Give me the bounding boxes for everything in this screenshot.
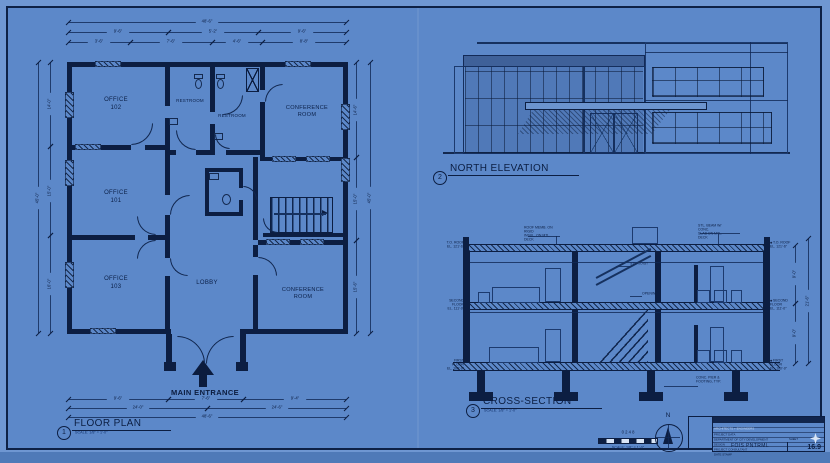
graphic-scale-bar [598,438,658,444]
leader [528,236,560,237]
section-pier [562,371,570,392]
dimension-label: 15'-0" [47,179,53,201]
marker-second-left: SECOND FLOOR EL. 111'-0" [443,299,464,311]
section-chair [714,290,727,303]
title-block: ARCHITECTS + ENGINEERS PROJECT DATA DEPA… [712,416,825,452]
wall-segment [205,168,243,172]
title-block-row-text: PROJECT DATA [713,434,735,436]
section-footing [469,392,493,401]
section-footing [554,392,578,401]
section-ground-slab [453,362,780,371]
wall-segment [240,334,246,362]
dimension-label: 24'-6" [265,405,287,411]
north-elevation-title: NORTH ELEVATION [448,163,579,176]
sheet-bottom-margin [0,452,830,463]
elevation-window-band [652,112,772,144]
wall-segment [165,155,170,195]
leader [718,234,719,245]
section-parapet [463,237,469,252]
title-block-row-text: DEPARTMENT OF CITY DEVELOPMENT [713,439,768,441]
wall-segment [263,233,348,237]
footer-divider [688,416,689,450]
dimension-label: 16'-0" [47,273,53,295]
section-roof-slab [463,244,770,252]
window-symbol [341,104,350,130]
sheet-label: SHEET [789,438,798,441]
dimension-label: 9'-6" [107,396,129,402]
window-symbol [65,262,74,288]
section-ext-wall [763,252,770,362]
stair-arrow-line [274,213,326,215]
dimension-label: 48'-6" [196,19,218,25]
scale-bar-ticks: 0 2 4 8 [606,430,651,436]
window-symbol [285,61,311,67]
section-pier [477,371,485,392]
title-block-row-text: DATE STAMP [713,454,732,456]
dimension-label: 15'-6" [353,275,359,297]
window-symbol [341,158,350,182]
room-label-lobby: LOBBY [185,280,229,288]
section-number-bubble: 3 [466,404,480,418]
window-symbol [306,156,330,162]
scale-bar-label: SCALE: 1/8" = 1'-0" [606,446,651,450]
wall-segment [236,362,248,371]
leader [700,233,740,234]
section-table [478,292,490,303]
elevation-entry-door [614,113,638,153]
wall-segment [165,62,170,106]
dimension-label: 48'-6" [196,414,218,420]
dimension-label: 7'-6" [160,39,182,45]
wall-segment [148,235,170,240]
leader [630,296,642,297]
section-chair [731,350,742,363]
sheet-number-cell: SHEET 16.9 [787,442,824,451]
room-label-conference-top: CONFERENCE ROOM [275,105,339,119]
wall-segment [210,62,215,112]
dimension-label: 9'-0" [792,263,798,285]
wall-segment [260,62,265,90]
section-ext-wall [463,252,470,362]
compass-axis [656,437,680,438]
window-symbol [65,160,74,186]
dimension-label: 15'-0" [353,187,359,209]
shaft-symbol [246,68,259,92]
section-chair [697,290,710,303]
floor-plan-title: FLOOR PLAN [72,418,171,431]
section-sofa [492,287,540,303]
sheet-fold-line [417,8,419,448]
elevation-canopy [525,102,707,110]
section-column [655,310,661,362]
dimension-label: 4'-6" [226,39,248,45]
project-name: FOIS PNTRML [713,442,787,451]
window-symbol [75,144,101,150]
room-label-office-102: OFFICE 102 [86,97,146,112]
footer-divider [688,416,823,417]
dimension-label: 8'-8" [293,39,315,45]
dimension-label: 9'-0" [792,322,798,344]
roof-assembly-note: ROOF MEMB. ON RIGID INSUL. ON MTL. DECK [524,226,555,242]
cross-section-title: CROSS-SECTION [481,396,602,409]
section-ceiling-line [470,312,763,313]
north-label: N [661,412,675,419]
wall-segment [253,275,258,333]
section-chair [731,290,742,303]
dimension-label: 9'-6" [291,29,313,35]
marker-roof-right: T.O. ROOF EL. 121'-6" [770,241,793,249]
sink [209,173,219,180]
blueprint-sheet: OFFICE 102 RESTROOM RESTROOM CONFERENCE … [0,0,830,463]
elevation-roof-band [463,55,645,67]
elevation-entry-door [590,113,614,153]
section-door [545,268,561,302]
window-symbol [90,328,116,334]
section-pier [647,371,655,392]
dimension-label: 14'-0" [47,93,53,115]
sheet-number: 16.9 [807,444,821,451]
section-chair [697,350,710,363]
section-footing [724,392,748,401]
dimension-label: 9'-4" [283,396,305,402]
dimension-label: 21'-6" [805,289,811,311]
wall-segment [67,235,135,240]
dimension-label: 5'-2" [202,29,224,35]
section-column [655,252,661,302]
wall-segment [260,102,265,157]
dimension-label: 14'-6" [353,98,359,120]
cross-section-scale: SCALE: 1/8" = 1'-0" [484,409,516,413]
room-label-office-101: OFFICE 101 [86,190,146,205]
section-ceiling-line [470,262,763,263]
room-label-office-103: OFFICE 103 [86,276,146,291]
dimension-label: 3'-6" [88,39,110,45]
section-door [545,329,561,362]
elevation-number-bubble: 2 [433,171,447,185]
wall-segment [253,245,258,257]
section-pier [732,371,740,392]
elevation-line [645,52,788,53]
window-symbol [272,156,296,162]
window-symbol [95,61,121,67]
section-parapet [764,237,770,252]
footing-note: CONC. PIER & FOOTING, TYP. [696,376,725,384]
dimension-label: 45'-0" [35,186,41,208]
section-column [572,252,578,302]
toilet-bowl [217,79,224,89]
marker-roof-left: T.O. ROOF EL. 121'-6" [443,241,464,249]
section-footing [639,392,663,401]
section-column [572,310,578,362]
wall-segment [165,240,170,258]
window-symbol [300,239,324,245]
plan-stairs [270,197,333,233]
wall-segment [343,62,348,334]
section-rooftop-unit [632,227,658,244]
elevation-floor-line [645,100,788,101]
wall-segment [165,276,170,333]
beam-note: STL. BEAM W/ CONC. SLAB ON MTL. DECK [698,224,730,240]
floor-plan-number-bubble: 1 [57,426,71,440]
window-symbol [266,239,290,245]
toilet-bowl [222,194,231,205]
dimension-label: 45'-0" [367,186,373,208]
wall-segment [166,334,172,362]
floor-plan-scale: SCALE: 1/8" = 1'-0" [75,431,107,435]
room-label-restroom-2: RESTROOM [216,114,249,120]
wall-segment [239,168,243,188]
leader [556,236,557,245]
dimension-label: 24'-0" [126,405,148,411]
wall-segment [205,212,243,216]
sink [169,118,178,125]
entrance-arrow-stem [199,374,207,387]
elevation-window-band [652,67,764,97]
toilet-bowl [195,79,202,89]
wall-segment [67,329,171,334]
wall-segment [196,150,215,155]
leader [664,386,698,387]
wall-segment [239,200,243,216]
wall-segment [164,362,176,371]
section-floor-slab [463,302,770,310]
room-label-restroom-1: RESTROOM [174,99,207,105]
title-block-header-text: ARCHITECTS + ENGINEERS [713,428,754,431]
room-label-conference-bottom: CONFERENCE ROOM [271,287,335,301]
dimension-label: 9'-6" [107,29,129,35]
section-chair [714,350,727,363]
window-symbol [65,92,74,118]
opening-note: OPENING [642,292,665,296]
dimension-label: 7'-6" [194,396,216,402]
marker-second-right: SECOND FLOOR EL. 111'-0" [770,299,793,311]
section-sofa [489,347,539,363]
